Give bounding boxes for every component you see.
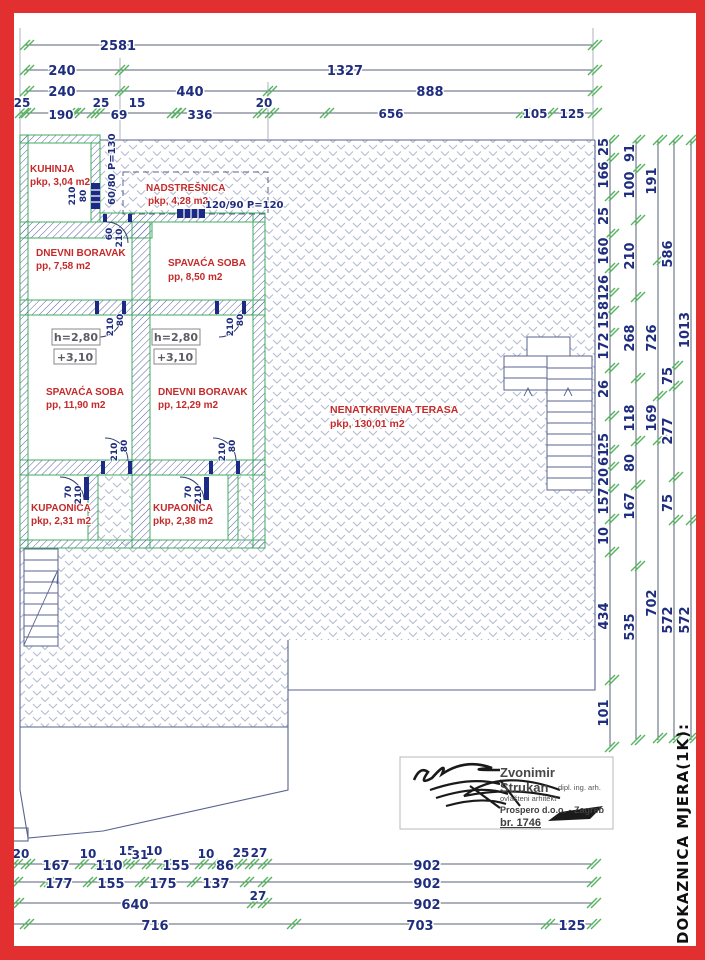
door-mark: 80: [120, 440, 130, 453]
architect-last-name: Strukan: [500, 780, 548, 795]
dim-label: 25: [233, 846, 250, 860]
dim-label: 75: [661, 494, 676, 512]
dim-label: 137: [202, 877, 229, 892]
door-mark: 210: [115, 229, 125, 248]
dim-label: 656: [378, 107, 403, 121]
door-mark: 210: [68, 187, 78, 206]
dim-label: 110: [95, 859, 122, 874]
dim-label: 118: [623, 404, 638, 431]
dim-label: 155: [162, 859, 189, 874]
door-mark: 80: [228, 440, 238, 453]
floor-plan-page: h=2,80 +3,10 h=2,80 +3,10 KUHINJA pkp, 3…: [0, 0, 705, 960]
side-note-dokaznica: DOKAZNICA MJERA(1K):: [674, 723, 692, 944]
room-label-spavaca-1: SPAVAĆA SOBA: [168, 256, 246, 269]
dim-label: 586: [661, 240, 676, 267]
dim-label: 20: [256, 96, 273, 110]
room-area-kupaonica-1: pkp, 2,31 m2: [31, 516, 91, 527]
dim-label: 155: [97, 877, 124, 892]
dim-label: 10: [80, 847, 97, 861]
dim-label: 10: [146, 844, 163, 858]
architect-firm: Prospero d.o.o. - Zagreb: [500, 805, 605, 815]
level-box-mid: +3,10: [157, 351, 194, 364]
level-box-left: +3,10: [57, 351, 94, 364]
door-mark: 210: [110, 443, 120, 462]
dim-label: 535: [623, 613, 638, 640]
dim-label: 177: [45, 877, 72, 892]
dim-label: 167: [42, 859, 69, 874]
door-mark: 210: [74, 486, 84, 505]
architect-role: ovlašteni arhitekt: [500, 794, 557, 803]
dim-label: 20: [13, 847, 30, 861]
dim-label: 125: [558, 919, 585, 934]
dim-label: 167: [623, 492, 638, 519]
dim-label: 160: [597, 237, 612, 264]
dim-label: 25: [14, 96, 31, 110]
room-label-spavaca-2: SPAVAĆA SOBA: [46, 385, 124, 398]
room-area-dnevni-1: pp, 7,58 m2: [36, 261, 91, 272]
dim-label: 640: [121, 898, 148, 913]
dim-label: 25: [93, 96, 110, 110]
room-label-dnevni-1: DNEVNI BORAVAK: [36, 248, 126, 259]
door-mark: 210: [226, 318, 236, 337]
room-area-nadstresnica: pkp, 4,28 m2: [148, 196, 208, 207]
architect-first-name: Zvonimir: [500, 765, 555, 780]
dim-label: 166: [597, 161, 612, 188]
dim-label: 210: [623, 242, 638, 269]
kitchen-window-sill: [91, 183, 100, 209]
dim-label: 902: [413, 877, 440, 892]
dim-label: 169: [645, 404, 660, 431]
dim-label: 277: [661, 417, 676, 444]
architect-number: br. 1746: [500, 817, 541, 829]
dim-label: 716: [141, 919, 168, 934]
door-mark: 70: [64, 486, 74, 499]
dim-label: 80: [623, 454, 638, 472]
floor-plan-drawing: h=2,80 +3,10 h=2,80 +3,10 KUHINJA pkp, 3…: [0, 0, 705, 960]
staircase-left: [24, 538, 58, 646]
dim-label: 191: [645, 167, 660, 194]
height-box-left: h=2,80: [54, 331, 99, 344]
dim-label: 172: [597, 332, 612, 359]
window-label-120-90: 120/90 P=120: [205, 200, 284, 211]
bedroom-window-sill: [177, 209, 205, 218]
dim-label: 10: [597, 527, 612, 545]
dim-label: 101: [597, 699, 612, 726]
dim-label: 175: [149, 877, 176, 892]
dim-label: 69: [111, 108, 128, 122]
room-area-dnevni-2: pp, 12,29 m2: [158, 400, 218, 411]
dim-label: 27: [250, 889, 267, 903]
dim-label: 702: [645, 589, 660, 616]
room-area-spavaca-2: pp, 11,90 m2: [46, 400, 106, 411]
dim-label: 703: [406, 919, 433, 934]
door-mark: 210: [218, 443, 228, 462]
room-label-kuhinja: KUHINJA: [30, 164, 74, 175]
door-mark: 70: [184, 486, 194, 499]
dim-label: 190: [48, 108, 73, 122]
door-mark: 60: [105, 228, 115, 241]
dim-label: 572: [678, 606, 693, 633]
dim-label: 26: [597, 275, 612, 293]
dim-label: 10: [198, 847, 215, 861]
dim-label: 240: [48, 64, 75, 79]
dim-label: 440: [176, 85, 203, 100]
dim-label: 75: [661, 367, 676, 385]
dim-label: 902: [413, 859, 440, 874]
dim-label: 91: [623, 144, 638, 162]
room-area-kuhinja: pkp, 3,04 m2: [30, 177, 90, 188]
dim-label: 572: [661, 606, 676, 633]
top-dimensions: 2581 240 1327 240 440 888 25 190 25 69 1…: [14, 28, 602, 140]
dim-label: 86: [216, 859, 234, 874]
title-block: Zvonimir Strukan dipl. ing. arh. ovlašte…: [400, 757, 613, 829]
dim-label: 2581: [100, 39, 136, 54]
dim-label: 125: [559, 107, 584, 121]
door-mark: 80: [236, 314, 246, 327]
dim-label: 26: [597, 380, 612, 398]
room-label-terasa: NENATKRIVENA TERASA: [330, 404, 459, 416]
dim-label: 336: [187, 108, 212, 122]
dim-label: 61: [597, 448, 612, 466]
dim-label: 902: [413, 898, 440, 913]
room-label-dnevni-2: DNEVNI BORAVAK: [158, 387, 248, 398]
dim-label: 1013: [678, 312, 693, 348]
room-area-spavaca-1: pp, 8,50 m2: [168, 272, 223, 283]
architect-credential: dipl. ing. arh.: [558, 783, 601, 792]
door-mark: 210: [106, 318, 116, 337]
dim-label: 25: [597, 207, 612, 225]
dim-label: 15: [129, 96, 146, 110]
door-mark: 80: [79, 190, 89, 203]
dim-label: 105: [522, 107, 547, 121]
dim-label: 434: [597, 602, 612, 629]
room-label-nadstresnica: NADSTREŠNICA: [146, 181, 225, 194]
dim-label: 100: [623, 171, 638, 198]
dim-label: 27: [251, 846, 268, 860]
dim-label: 157: [597, 487, 612, 514]
room-area-terasa: pkp, 130,01 m2: [330, 418, 405, 430]
room-area-kupaonica-2: pkp, 2,38 m2: [153, 516, 213, 527]
dim-label: 1327: [327, 64, 363, 79]
window-label-60-80: 60/80 P=130: [107, 133, 118, 205]
bottom-dimensions: 20 167 10 110 15 31 10 155 10 86 25 27 9…: [9, 844, 601, 934]
dim-label: 240: [48, 85, 75, 100]
door-mark: 80: [116, 314, 126, 327]
dim-label: 81: [597, 292, 612, 310]
dim-label: 20: [597, 468, 612, 486]
door-mark: 210: [194, 486, 204, 505]
right-dimensions: 25 166 25 160 26 81 15 172 26 25 61 20 1…: [597, 135, 700, 752]
dim-label: 726: [645, 324, 660, 351]
dim-label: 15: [597, 311, 612, 329]
dim-label: 25: [597, 138, 612, 156]
dim-label: 268: [623, 324, 638, 351]
dim-label: 888: [416, 85, 443, 100]
height-box-mid: h=2,80: [154, 331, 199, 344]
